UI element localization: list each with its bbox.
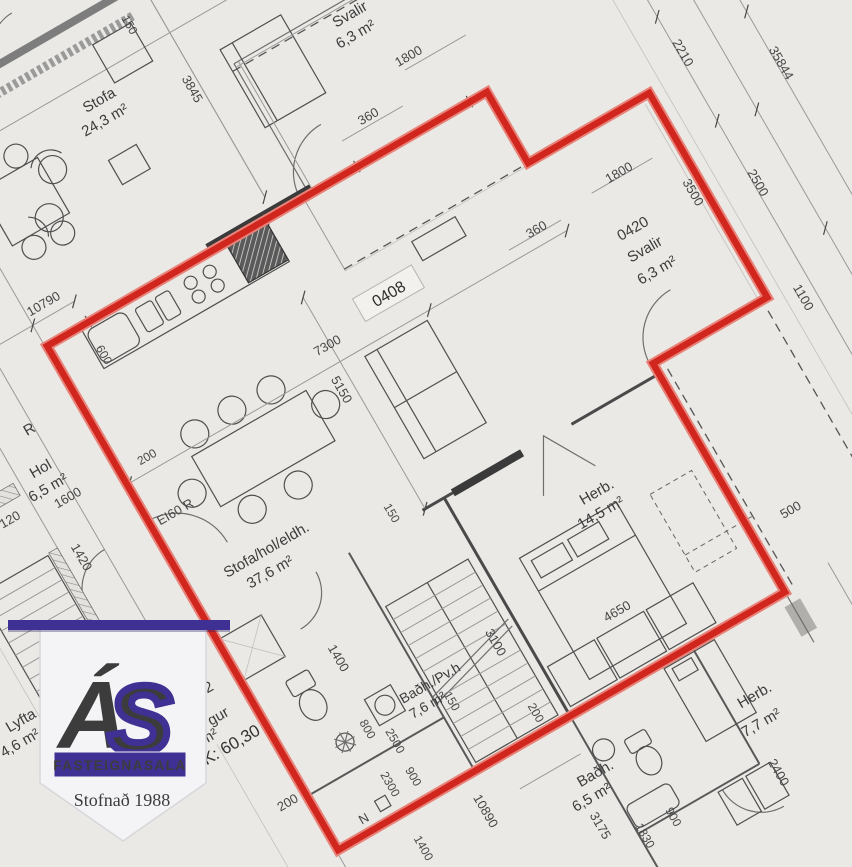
logo-tagline-text: Stofnað 1988	[74, 790, 171, 810]
logo-bar	[8, 620, 230, 630]
logo-name-text: FASTEIGNASALA	[53, 758, 187, 773]
floor-plan-svg: Stofa 24,3 m² Svalir 6,3 m² 1800 360 384…	[0, 0, 852, 867]
floor-plan-screenshot: Stofa 24,3 m² Svalir 6,3 m² 1800 360 384…	[0, 0, 852, 867]
